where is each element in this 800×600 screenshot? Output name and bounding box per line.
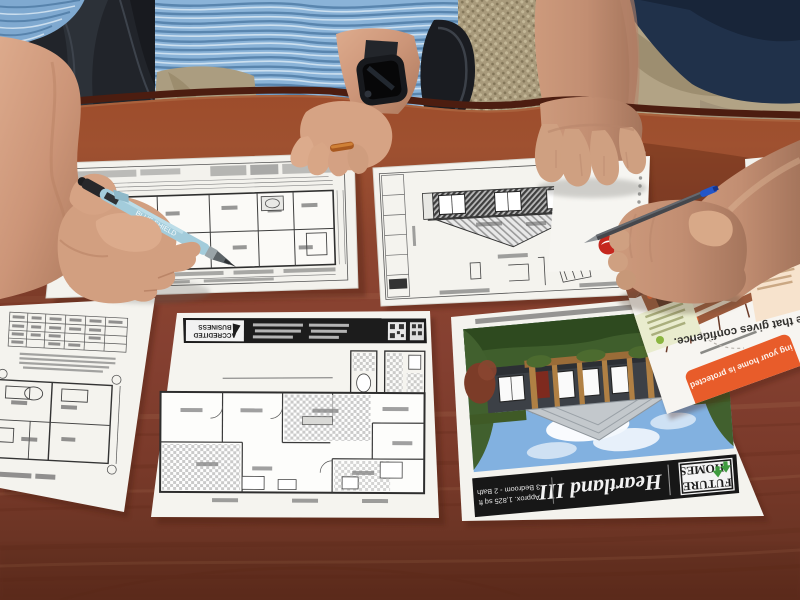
svg-text:BUSINESS: BUSINESS	[198, 323, 232, 330]
svg-text:ACCREDITED: ACCREDITED	[193, 331, 236, 338]
